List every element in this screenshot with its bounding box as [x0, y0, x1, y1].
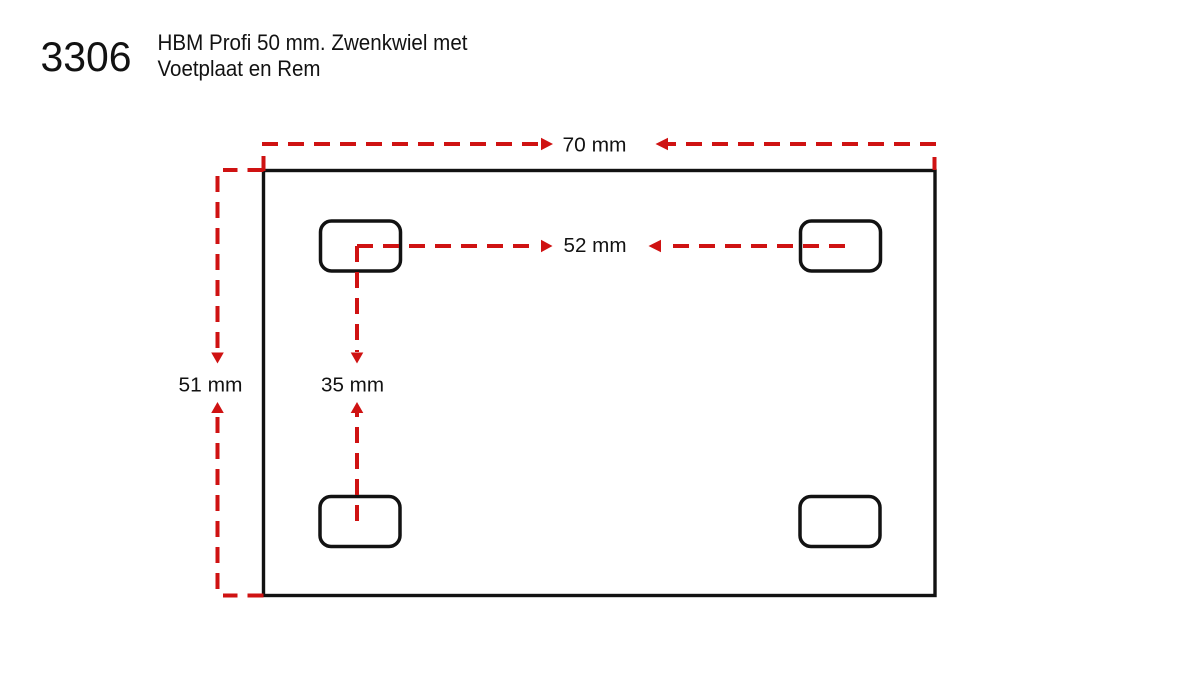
- svg-text:35 mm: 35 mm: [321, 375, 384, 397]
- svg-text:52 mm: 52 mm: [564, 235, 627, 257]
- svg-text:HBM Profi 50 mm. Zwenkwiel met: HBM Profi 50 mm. Zwenkwiel met: [158, 30, 468, 55]
- svg-text:3306: 3306: [41, 33, 132, 80]
- svg-text:70 mm: 70 mm: [563, 134, 627, 156]
- svg-text:Voetplaat en Rem: Voetplaat en Rem: [158, 56, 321, 81]
- svg-text:51 mm: 51 mm: [179, 375, 243, 397]
